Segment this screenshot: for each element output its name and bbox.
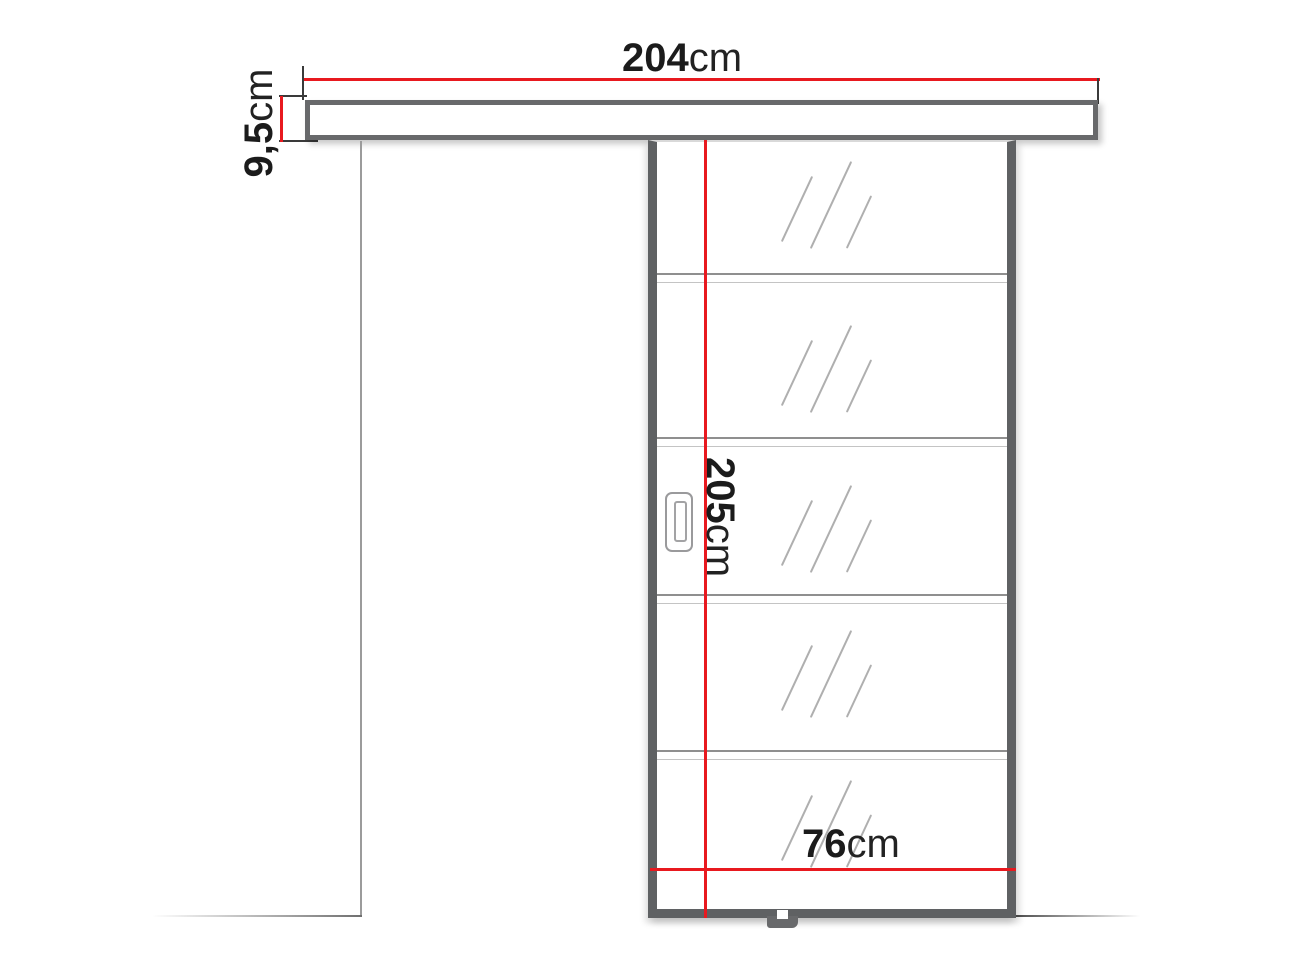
- glass-panel-divider-2: [657, 437, 1007, 447]
- rail-height-unit: cm: [237, 69, 281, 122]
- door-width-dimension-line: [650, 868, 1016, 871]
- wall-edge-line: [360, 141, 362, 917]
- rail-width-unit: cm: [689, 36, 742, 80]
- rail-width-value: 204: [622, 36, 689, 80]
- rail-height-dimension-tick-bottom: [279, 140, 318, 142]
- hatch-stroke: [781, 176, 813, 242]
- hatch-stroke: [846, 519, 872, 572]
- hatch-stroke: [781, 500, 813, 566]
- hatch-stroke: [810, 161, 852, 249]
- glass-reflection-hatch-4: [782, 620, 892, 730]
- glass-panel-divider-1: [657, 273, 1007, 283]
- glass-reflection-hatch-2: [782, 315, 892, 425]
- top-rail: [305, 100, 1098, 140]
- door-height-unit: cm: [698, 524, 742, 577]
- hatch-stroke: [846, 664, 872, 717]
- floor-line-left: [152, 915, 362, 917]
- glass-panel-divider-3: [657, 594, 1007, 604]
- rail-height-value: 9,5: [237, 122, 281, 178]
- hatch-stroke: [810, 485, 852, 573]
- hatch-stroke: [781, 645, 813, 711]
- rail-width-dimension-line: [303, 78, 1100, 81]
- glass-panel-divider-4: [657, 750, 1007, 760]
- glass-reflection-hatch-1: [782, 151, 892, 261]
- rail-width-dimension-label: 204cm: [622, 38, 742, 78]
- rail-height-dimension-tick-top: [279, 95, 307, 97]
- hatch-stroke: [846, 195, 872, 248]
- technical-drawing: 204cm 9,5cm: [0, 0, 1299, 974]
- floor-guide-roller: [777, 910, 788, 919]
- floor-line-right: [1016, 915, 1140, 917]
- door-height-value: 205: [698, 457, 742, 524]
- hatch-stroke: [781, 340, 813, 406]
- rail-height-dimension-line: [280, 96, 283, 142]
- door-height-dimension-label: 205cm: [698, 447, 740, 587]
- door-width-unit: cm: [847, 822, 900, 866]
- hatch-stroke: [810, 325, 852, 413]
- door-handle-recess: [674, 501, 687, 542]
- hatch-stroke: [846, 359, 872, 412]
- hatch-stroke: [810, 630, 852, 718]
- rail-height-dimension-label: 9,5cm: [239, 53, 281, 193]
- door-width-dimension-label: 76cm: [802, 824, 900, 864]
- door-width-value: 76: [802, 822, 847, 866]
- glass-reflection-hatch-3: [782, 475, 892, 585]
